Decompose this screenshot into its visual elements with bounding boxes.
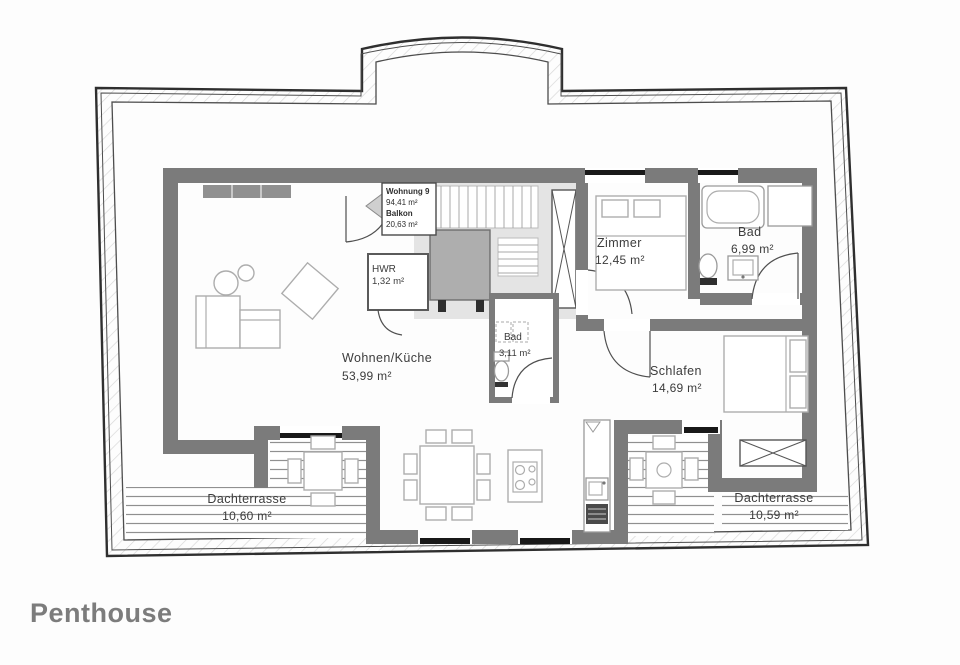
chair xyxy=(653,491,675,504)
label-zimmer-name: Zimmer xyxy=(597,236,642,250)
dining-table xyxy=(420,446,474,504)
chair xyxy=(477,454,490,474)
label-terrasse-links-name: Dachterrasse xyxy=(207,492,286,506)
wall-terrace-left-stub xyxy=(254,426,268,488)
chair xyxy=(288,459,301,483)
stair-lower-flight xyxy=(498,238,538,276)
wall-living-bottom-left xyxy=(163,440,268,454)
sideboard xyxy=(203,185,291,198)
unit-name: Wohnung 9 xyxy=(386,187,430,196)
label-terrasse-rechts-name: Dachterrasse xyxy=(734,491,813,505)
chair xyxy=(311,436,335,449)
window-top-zimmer xyxy=(585,170,645,175)
label-wohnen-name: Wohnen/Küche xyxy=(342,351,432,365)
label-bad-klein-name: Bad xyxy=(504,332,522,343)
ventilation-shaft xyxy=(552,190,576,308)
elevator-door-post xyxy=(476,300,484,312)
chair xyxy=(404,454,417,474)
chair xyxy=(345,459,358,483)
pillow xyxy=(790,376,806,408)
door-opening-bad xyxy=(752,293,800,305)
bath-cabinet xyxy=(768,186,812,226)
label-hwr-name: HWR xyxy=(372,264,396,275)
label-wohnen-area: 53,99 m² xyxy=(342,369,392,383)
kitchen-grate xyxy=(586,504,608,524)
bathtub xyxy=(702,186,764,228)
door-opening-schlafen xyxy=(604,319,650,331)
chair xyxy=(404,480,417,500)
chair xyxy=(685,458,698,480)
label-schlafen-name: Schlafen xyxy=(650,364,702,378)
terrace-table xyxy=(646,452,682,488)
terrace-table xyxy=(304,452,342,490)
wall-schlafen-south xyxy=(708,478,817,492)
chair xyxy=(452,507,472,520)
plan-title: Penthouse xyxy=(30,598,173,628)
toilet xyxy=(699,254,717,285)
chair xyxy=(630,458,643,480)
pillow xyxy=(790,340,806,372)
sink xyxy=(728,256,758,280)
window-bottom-2 xyxy=(520,538,570,544)
label-schlafen-area: 14,69 m² xyxy=(652,381,702,395)
chair xyxy=(426,507,446,520)
window-top-bad xyxy=(698,170,738,175)
wall-center-left xyxy=(366,426,380,544)
chair xyxy=(477,480,490,500)
label-bad-gross-area: 6,99 m² xyxy=(731,242,774,256)
kitchen-sink xyxy=(586,478,608,500)
label-hwr-area: 1,32 m² xyxy=(372,276,404,287)
window-bottom-1 xyxy=(420,538,470,544)
plant xyxy=(214,271,238,295)
wall-zimmer-bad xyxy=(688,183,700,299)
door-opening-zimmer xyxy=(576,270,588,315)
elevator-door-post xyxy=(438,300,446,312)
label-terrasse-rechts-area: 10,59 m² xyxy=(749,508,799,522)
floorplan-drawing: Wohnung 9 94,41 m² Balkon 20,63 m² Wohne… xyxy=(0,0,960,665)
floorplan-page: Wohnung 9 94,41 m² Balkon 20,63 m² Wohne… xyxy=(0,0,960,665)
pillow xyxy=(602,200,628,217)
chair xyxy=(311,493,335,506)
pillow xyxy=(634,200,660,217)
elevator-shaft xyxy=(430,230,490,300)
plant xyxy=(238,265,254,281)
window-terrace-right xyxy=(684,427,718,433)
wall-left xyxy=(163,168,178,454)
wall-center-right xyxy=(614,426,628,544)
unit-balcony-area: 20,63 m² xyxy=(386,220,418,229)
chair xyxy=(452,430,472,443)
label-bad-klein-area: 3,11 m² xyxy=(499,348,531,359)
label-zimmer-area: 12,45 m² xyxy=(595,253,645,267)
unit-area: 94,41 m² xyxy=(386,198,418,207)
label-terrasse-links-area: 10,60 m² xyxy=(222,509,272,523)
wardrobe xyxy=(740,440,806,466)
chair xyxy=(426,430,446,443)
unit-balcony-label: Balkon xyxy=(386,209,413,218)
chair xyxy=(653,436,675,449)
label-bad-gross-name: Bad xyxy=(738,225,761,239)
